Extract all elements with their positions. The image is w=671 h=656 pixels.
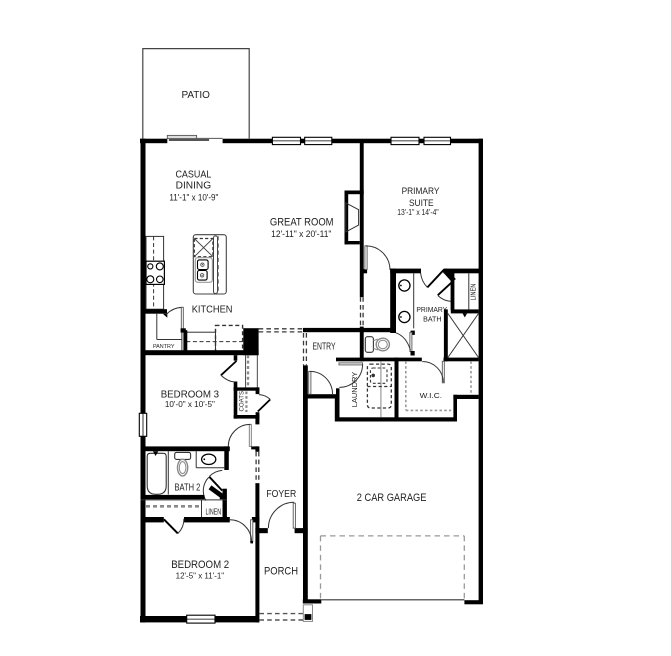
svg-text:PATIO: PATIO xyxy=(181,90,210,101)
svg-text:13'-1" x 14'-4": 13'-1" x 14'-4" xyxy=(397,208,439,217)
svg-text:LINEN: LINEN xyxy=(470,284,477,301)
svg-text:FOYER: FOYER xyxy=(266,489,296,500)
svg-text:2 CAR GARAGE: 2 CAR GARAGE xyxy=(357,492,427,504)
svg-text:12'-11" x 20'-11": 12'-11" x 20'-11" xyxy=(271,229,331,239)
svg-text:BATH: BATH xyxy=(423,316,441,323)
svg-text:12'-5" x 11'-1": 12'-5" x 11'-1" xyxy=(176,571,225,581)
svg-text:W.I.C.: W.I.C. xyxy=(420,391,442,400)
svg-text:DINING: DINING xyxy=(176,181,212,192)
svg-text:PRIMARY: PRIMARY xyxy=(402,185,440,196)
svg-text:SUITE: SUITE xyxy=(409,197,434,208)
svg-text:PRIMARY: PRIMARY xyxy=(416,307,447,314)
svg-text:GREAT ROOM: GREAT ROOM xyxy=(270,217,334,229)
svg-text:BEDROOM 2: BEDROOM 2 xyxy=(171,559,229,571)
svg-text:PORCH: PORCH xyxy=(264,566,298,578)
svg-text:PANTRY: PANTRY xyxy=(153,344,175,350)
svg-text:BATH 2: BATH 2 xyxy=(175,483,201,494)
svg-text:KITCHEN: KITCHEN xyxy=(192,305,233,316)
svg-text:10'-0" x 10'-5": 10'-0" x 10'-5" xyxy=(165,399,215,409)
svg-text:11'-1" x 10'-9": 11'-1" x 10'-9" xyxy=(169,193,218,203)
svg-text:ENTRY: ENTRY xyxy=(312,342,335,353)
svg-text:COATS: COATS xyxy=(239,391,246,412)
svg-text:LINEN: LINEN xyxy=(205,508,221,517)
svg-text:LAUNDRY: LAUNDRY xyxy=(350,372,359,408)
svg-text:CASUAL: CASUAL xyxy=(175,169,211,180)
